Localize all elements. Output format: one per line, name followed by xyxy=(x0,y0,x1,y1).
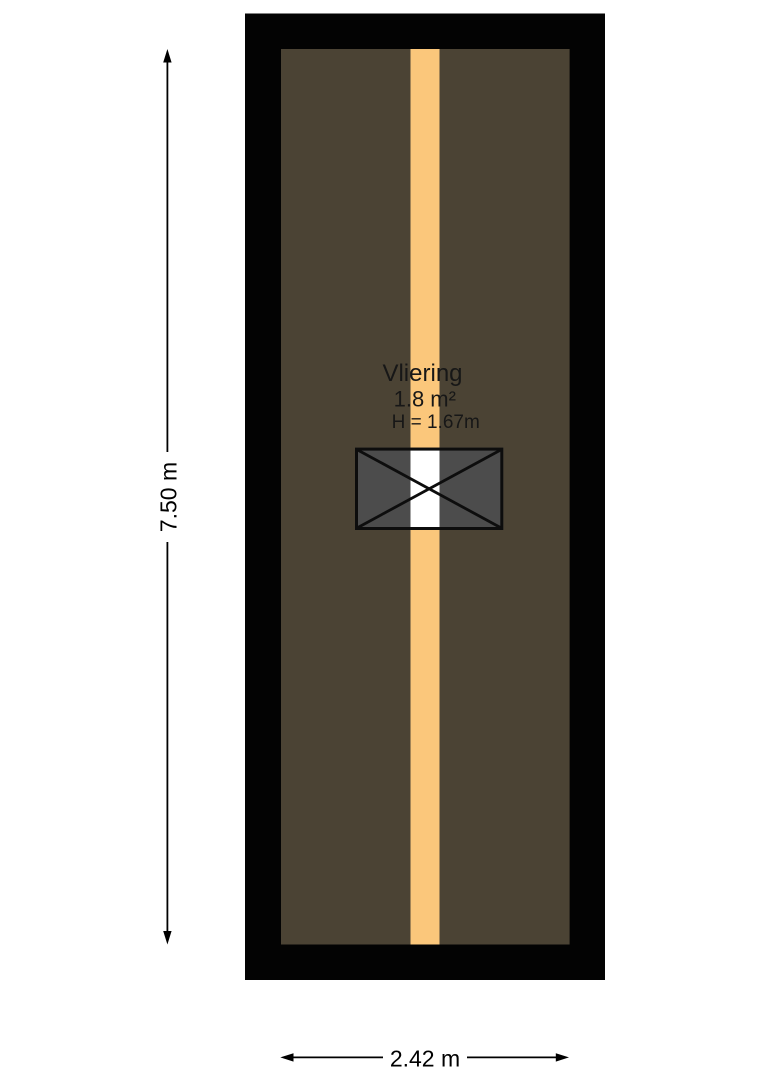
svg-text:1.8 m²: 1.8 m² xyxy=(394,386,456,411)
svg-text:Vliering: Vliering xyxy=(382,360,462,387)
svg-text:H = 1.67m: H = 1.67m xyxy=(392,412,480,433)
svg-text:2.42 m: 2.42 m xyxy=(390,1045,460,1071)
svg-text:7.50 m: 7.50 m xyxy=(155,462,181,532)
